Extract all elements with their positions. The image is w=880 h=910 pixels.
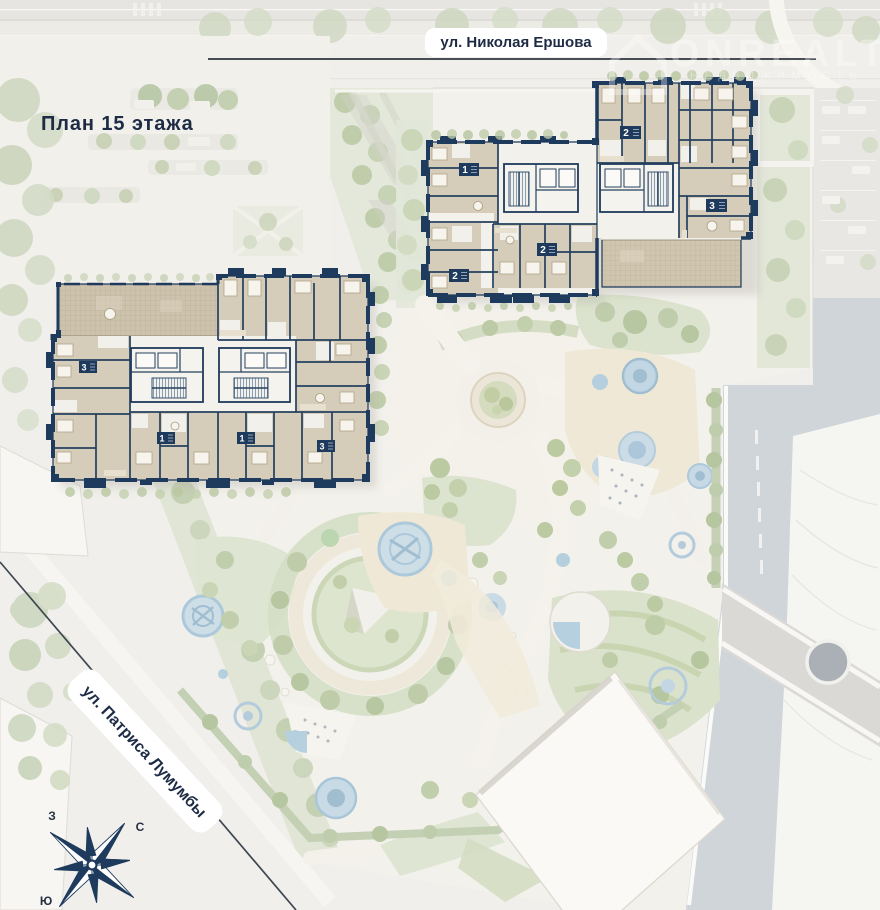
svg-text:3: 3 [709,201,715,212]
svg-text:З: З [48,809,56,823]
svg-text:ONREALT: ONREALT [670,33,880,75]
svg-text:3: 3 [319,442,324,452]
svg-text:2: 2 [540,245,546,256]
svg-text:1: 1 [462,165,468,176]
svg-text:С: С [136,820,145,834]
svg-text:1: 1 [239,434,244,444]
svg-text:НЕДВИЖИМОСТЬ: НЕДВИЖИМОСТЬ [690,70,863,82]
svg-text:3: 3 [81,363,86,373]
svg-text:1: 1 [159,434,164,444]
svg-text:Ю: Ю [40,894,52,908]
svg-text:2: 2 [452,271,458,282]
svg-text:2: 2 [623,128,629,139]
svg-text:ул. Николая Ершова: ул. Николая Ершова [440,34,592,51]
svg-text:План 15 этажа: План 15 этажа [41,113,194,135]
